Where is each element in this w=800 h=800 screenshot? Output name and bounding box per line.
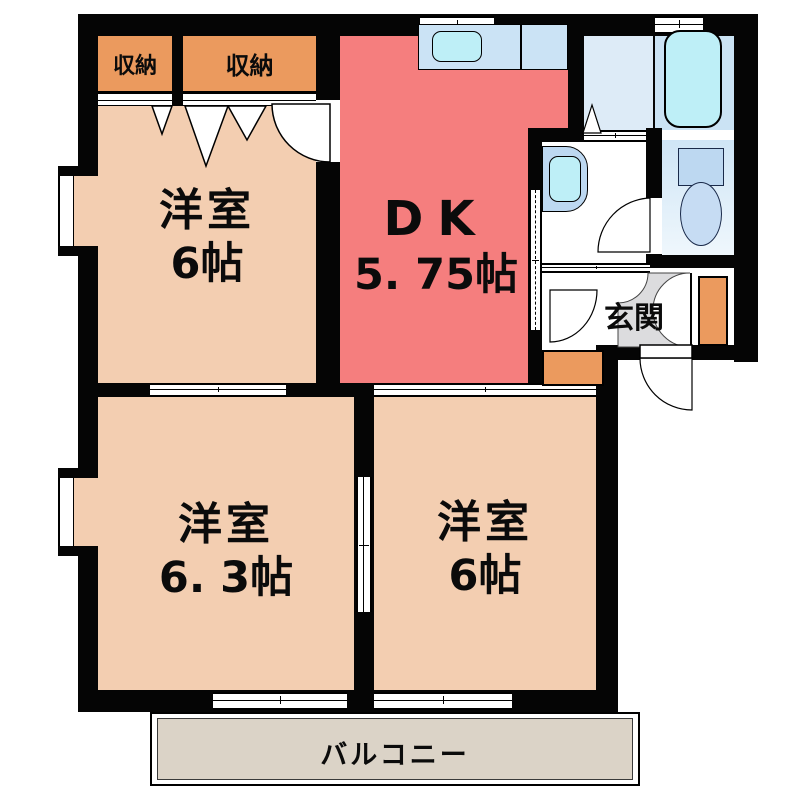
shoe-cabinet	[698, 276, 728, 346]
wall-west1-dk	[316, 36, 340, 383]
wall-kitchen-washroom	[568, 36, 584, 140]
room-name: 洋室	[98, 184, 316, 238]
wall-left-rooms-a	[78, 383, 150, 397]
wall-genkan-niche-divider	[690, 273, 692, 345]
room-size: 6. 3帖	[98, 552, 354, 604]
washroom-floor	[584, 36, 653, 130]
wall-left	[78, 14, 98, 712]
bay-window-top-floor	[74, 176, 98, 246]
wall-toilet-bottom	[646, 255, 734, 268]
balcony-label: バルコニー	[150, 733, 640, 772]
kitchen-counter-divider	[520, 24, 522, 70]
entrance-door-arc	[640, 358, 692, 410]
bathtub	[664, 30, 722, 128]
entrance-door-leaf	[640, 345, 692, 358]
wall-washroom-bath-divider	[653, 36, 655, 130]
room-label-west1: 洋室 6帖	[98, 184, 316, 290]
closet-divider-stub	[172, 36, 183, 106]
room-name: 洋室	[98, 498, 354, 552]
toilet-tank	[678, 148, 724, 186]
floor-plan: 収納 収納 洋室 6帖 DK 5. 75帖 洋室 6. 3帖 洋室 6帖 玄関 …	[0, 0, 800, 800]
closet-left-label: 収納	[98, 48, 172, 80]
toilet-bowl	[680, 182, 722, 246]
wall-left-rooms-b	[286, 383, 374, 397]
hall-genkan-opening	[542, 263, 650, 273]
bay-window-bottom-glass	[58, 478, 74, 546]
bay-window-bottom-floor	[74, 478, 98, 546]
wall-genkan-bottom-right	[692, 345, 758, 360]
room-name: 洋室	[374, 496, 596, 550]
bay-window-bottom-cap-upper	[58, 468, 98, 478]
room-label-west3: 洋室 6帖	[374, 496, 596, 602]
wall-right-lower	[596, 345, 618, 712]
room-size: 6帖	[374, 550, 596, 602]
room-label-west2: 洋室 6. 3帖	[98, 498, 354, 604]
wall-right-upper	[734, 14, 758, 362]
bay-window-top-cap-lower	[58, 246, 98, 256]
room-label-dk: DK 5. 75帖	[340, 190, 532, 301]
kitchen-sink	[432, 31, 482, 62]
bay-window-top-cap-upper	[58, 166, 98, 176]
doorway-west1	[316, 100, 340, 162]
bay-window-top-glass	[58, 176, 74, 246]
room-name: DK	[340, 190, 532, 249]
wall-bottom	[78, 690, 618, 712]
balcony-window-left	[213, 692, 347, 710]
closet-right-label: 収納	[183, 46, 316, 81]
closet-door-track	[98, 93, 316, 106]
room-size: 5. 75帖	[340, 249, 532, 301]
sliding-door-bottom-rooms	[356, 477, 372, 612]
bay-window-bottom-cap-lower	[58, 546, 98, 556]
washroom-door	[584, 130, 646, 142]
sliding-door-left-rooms	[150, 383, 286, 397]
doorway-toilet	[646, 198, 662, 254]
room-size: 6帖	[98, 238, 316, 290]
entrance-label: 玄関	[578, 293, 690, 337]
balcony-window-right	[374, 692, 512, 710]
closet-west3	[542, 350, 604, 386]
washbasin-sink	[549, 156, 581, 202]
